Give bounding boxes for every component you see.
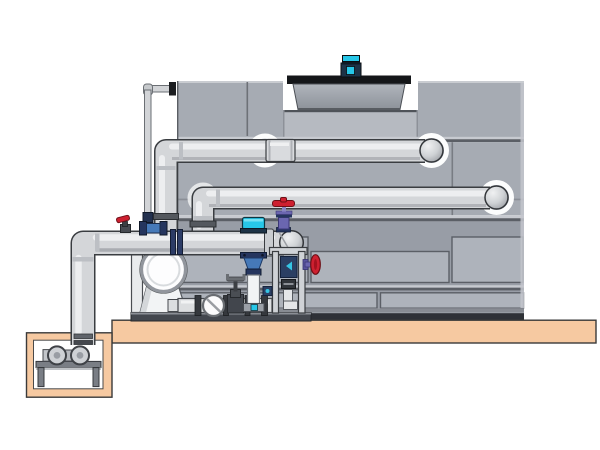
pipe1-collar-h xyxy=(179,142,183,160)
blue-flanged-valve xyxy=(140,222,168,236)
inline-pump-column xyxy=(248,275,260,304)
globe-valve-stem xyxy=(282,207,286,212)
cooling-tower-scene xyxy=(0,0,600,450)
casing-top-left-panel xyxy=(177,81,283,137)
gate-valve-handle-tip-r xyxy=(243,274,246,281)
cowl-recess-left-edge xyxy=(283,110,285,137)
gate-valve-handle xyxy=(227,277,245,281)
fan-motor-top-cap xyxy=(343,56,360,62)
globe-valve-flange-band-1 xyxy=(276,215,292,218)
cowl-recess-band xyxy=(283,110,418,137)
pipe2-wall-elbow xyxy=(485,186,508,209)
stand-shelf-line xyxy=(36,368,101,370)
fan-cowl-bottom-line xyxy=(298,108,400,110)
pipe1-sleeve-highlight xyxy=(270,143,289,147)
casing-top-edge-highlight-left xyxy=(177,81,283,83)
fan-motor xyxy=(341,56,361,78)
blue-valve-flange-r xyxy=(160,222,167,236)
brick-panel-b xyxy=(311,252,449,283)
inline-pump-motor-base xyxy=(241,229,267,234)
frame-post-left xyxy=(273,252,279,314)
globe-valve-body xyxy=(279,218,290,230)
inline-pump-tag xyxy=(251,305,258,311)
riser-coupling-band-2 xyxy=(74,341,93,345)
ground xyxy=(27,320,597,397)
brick-panel-c xyxy=(452,237,523,282)
pit-pump-volute-hub xyxy=(77,352,84,359)
inline-pump-bolt-l xyxy=(243,254,246,257)
inline-pump-motor-sheen xyxy=(244,219,263,222)
header-wall-flange-a xyxy=(171,230,176,255)
pipe2-collar-h xyxy=(216,190,220,207)
pit-pump-motor-hub xyxy=(54,352,61,359)
header-collar-h xyxy=(95,234,100,252)
manifold-flange-1 xyxy=(195,296,201,316)
casing-right-edge-highlight xyxy=(521,83,525,308)
inline-pump-band xyxy=(246,269,261,275)
casing-top-edge-highlight-right xyxy=(418,81,524,83)
globe-valve-handle-hub xyxy=(281,198,287,203)
gate-valve-handle-tip-l xyxy=(226,274,229,281)
fan-cowl-body xyxy=(293,84,405,110)
cowl-recess-top-line xyxy=(283,110,418,112)
seam-band3-light xyxy=(177,285,524,287)
overflow-horizontal xyxy=(150,86,171,93)
stand-leg-left xyxy=(38,368,44,387)
illustration-canvas xyxy=(0,0,600,450)
pipe2-riser-flange xyxy=(190,221,216,227)
overflow-tank-fitting xyxy=(169,82,176,96)
stand-leg-right xyxy=(93,368,99,387)
casing-top-seam xyxy=(247,82,249,136)
pipe1-riser-flange xyxy=(154,214,179,220)
pipe2-collar-v xyxy=(194,216,213,220)
brick-panel-e xyxy=(381,293,524,308)
red-tap-stem xyxy=(123,222,128,227)
riser-coupling-band-1 xyxy=(74,334,93,339)
seam-band2-dark xyxy=(177,218,524,221)
gate-valve-stem xyxy=(234,282,238,292)
globe-valve-flange-band-2 xyxy=(276,211,292,215)
fan-motor-window xyxy=(347,67,355,75)
seam-band1-light xyxy=(177,137,524,139)
seam-band3-dark xyxy=(177,288,524,291)
pipe1-collar-v xyxy=(157,166,176,170)
overflow-vertical xyxy=(145,90,152,222)
concrete-pad xyxy=(112,320,596,343)
pump-side-panel xyxy=(132,250,143,313)
blue-valve-body xyxy=(147,224,161,234)
seam-band2-light xyxy=(177,215,524,218)
cowl-recess-right-edge xyxy=(417,110,419,137)
inline-pump-bolt-r xyxy=(261,254,264,257)
frame-display-line xyxy=(284,283,294,285)
casing-top-right-panel xyxy=(418,81,524,137)
pipe1-sleeve-collar-r xyxy=(291,141,293,161)
pipe1-wall-elbow xyxy=(420,139,443,162)
post-mini-valve-dot xyxy=(266,289,270,293)
stand-top xyxy=(36,361,101,367)
red-tap-valve xyxy=(116,215,130,233)
handwheel-hub xyxy=(314,259,317,270)
header-collar-v xyxy=(73,257,94,262)
header-wall-flange-b xyxy=(178,230,183,255)
blue-valve-flange-l xyxy=(140,222,147,236)
frame-drain-elbow-h xyxy=(284,301,298,310)
